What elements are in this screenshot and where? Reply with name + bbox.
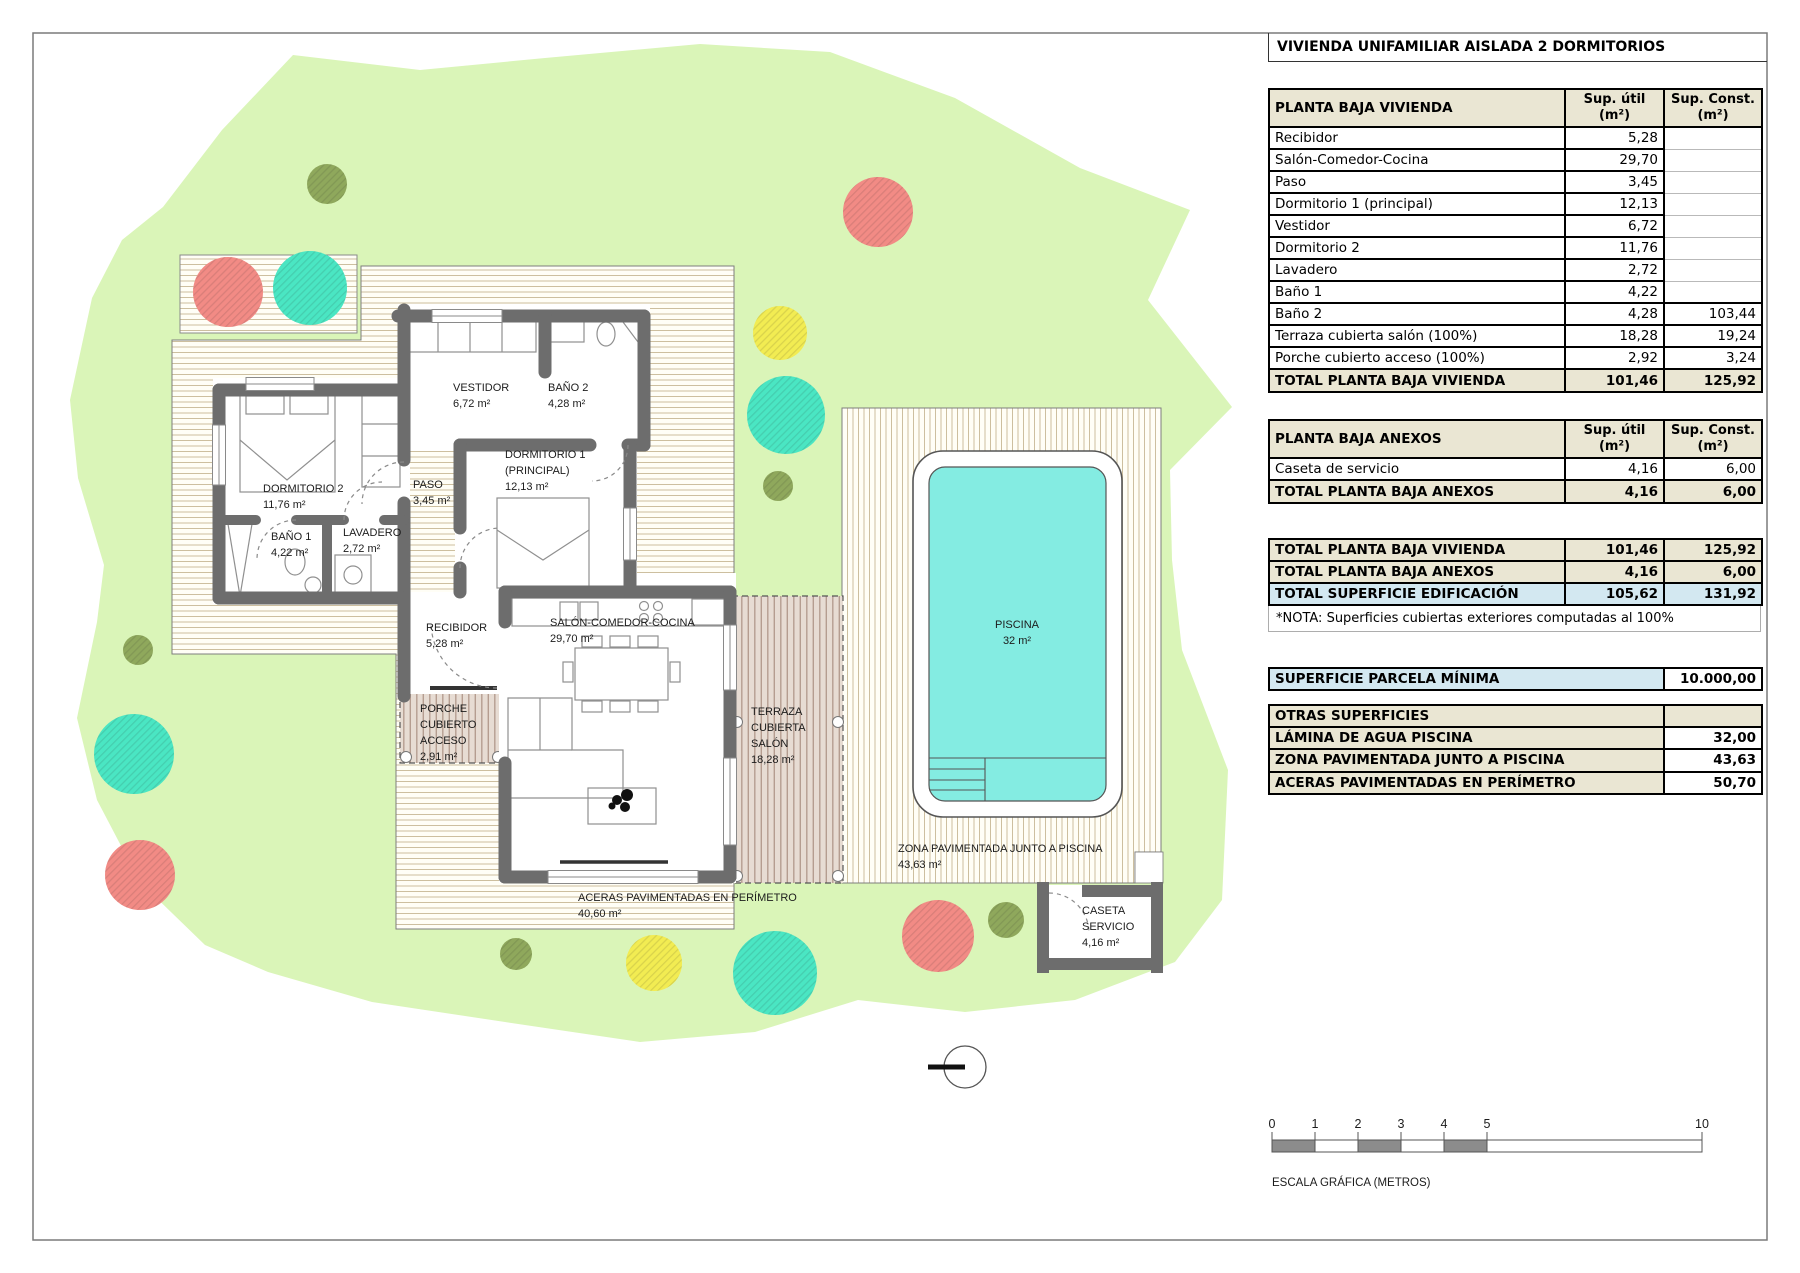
room-name: Dormitorio 2 (1269, 237, 1565, 259)
tree-icon (94, 714, 174, 794)
scale-tick-label: 2 (1355, 1117, 1362, 1131)
room-name: Dormitorio 1 (principal) (1269, 193, 1565, 215)
table-parcela-minima: SUPERFICIE PARCELA MÍNIMA 10.000,00 (1268, 667, 1763, 691)
sup-const (1664, 237, 1762, 259)
scale-tick-label: 5 (1484, 1117, 1491, 1131)
sup-util: 2,72 (1565, 259, 1664, 281)
room-name: Salón-Comedor-Cocina (1269, 149, 1565, 171)
total-const: 131,92 (1664, 583, 1762, 605)
tree-icon (500, 938, 532, 970)
row-label: SUPERFICIE PARCELA MÍNIMA (1269, 668, 1664, 690)
column-header: Sup. Const. (m²) (1664, 420, 1762, 458)
table-header: OTRAS SUPERFICIES (1269, 705, 1664, 727)
table-row: LÁMINA DE AGUA PISCINA32,00 (1269, 727, 1762, 749)
row-label: ZONA PAVIMENTADA JUNTO A PISCINA (1269, 749, 1664, 771)
sup-util: 6,72 (1565, 215, 1664, 237)
total-util: 105,62 (1565, 583, 1664, 605)
room-name: Lavadero (1269, 259, 1565, 281)
total-row: TOTAL PLANTA BAJA VIVIENDA101,46125,92 (1269, 369, 1762, 392)
tree-icon (733, 931, 817, 1015)
table-row: Terraza cubierta salón (100%)18,2819,24 (1269, 325, 1762, 347)
scale-tick-label: 3 (1398, 1117, 1405, 1131)
scale-bar-segment (1358, 1140, 1401, 1152)
scale-tick-label: 1 (1312, 1117, 1319, 1131)
table-row: Dormitorio 1 (principal)12,13 (1269, 193, 1762, 215)
table-header: PLANTA BAJA VIVIENDA (1269, 89, 1565, 127)
sup-util: 4,16 (1565, 458, 1664, 480)
column-header: Sup. útil (m²) (1565, 89, 1664, 127)
sup-const: 103,44 (1664, 303, 1762, 325)
sup-util: 12,13 (1565, 193, 1664, 215)
sup-util: 29,70 (1565, 149, 1664, 171)
table-planta-baja-anexos: PLANTA BAJA ANEXOS Sup. útil (m²) Sup. C… (1268, 419, 1763, 504)
room-name: Baño 1 (1269, 281, 1565, 303)
tree-icon (193, 257, 263, 327)
row-label: LÁMINA DE AGUA PISCINA (1269, 727, 1664, 749)
tree-icon (307, 164, 347, 204)
total-util: 101,46 (1565, 539, 1664, 561)
total-label: TOTAL PLANTA BAJA ANEXOS (1269, 480, 1565, 503)
column-header: Sup. útil (m²) (1565, 420, 1664, 458)
tree-icon (105, 840, 175, 910)
sup-const: 6,00 (1664, 458, 1762, 480)
sup-util: 5,28 (1565, 127, 1664, 149)
table-row: Dormitorio 211,76 (1269, 237, 1762, 259)
sup-const: 19,24 (1664, 325, 1762, 347)
room-name: Caseta de servicio (1269, 458, 1565, 480)
tree-icon (626, 935, 682, 991)
sup-util: 4,28 (1565, 303, 1664, 325)
row-label: ACERAS PAVIMENTADAS EN PERÍMETRO (1269, 772, 1664, 794)
sup-const (1664, 215, 1762, 237)
room-name: Baño 2 (1269, 303, 1565, 325)
table-row: Baño 24,28103,44 (1269, 303, 1762, 325)
table-header: PLANTA BAJA ANEXOS (1269, 420, 1565, 458)
scale-bar-segment (1444, 1140, 1487, 1152)
table-row: Lavadero2,72 (1269, 259, 1762, 281)
row-value: 50,70 (1664, 772, 1762, 794)
table-row: Salón-Comedor-Cocina29,70 (1269, 149, 1762, 171)
tree-icon (763, 471, 793, 501)
pool (913, 451, 1122, 817)
summary-row: TOTAL PLANTA BAJA VIVIENDA101,46125,92 (1269, 539, 1762, 561)
total-const: 125,92 (1664, 369, 1762, 392)
sup-util: 4,22 (1565, 281, 1664, 303)
summary-row: TOTAL PLANTA BAJA ANEXOS4,166,00 (1269, 561, 1762, 583)
total-label: TOTAL PLANTA BAJA VIVIENDA (1269, 539, 1565, 561)
total-util: 101,46 (1565, 369, 1664, 392)
note-text: *NOTA: Superficies cubiertas exteriores … (1268, 606, 1761, 632)
tree-icon (843, 177, 913, 247)
table-row: Paso3,45 (1269, 171, 1762, 193)
table-resumen: TOTAL PLANTA BAJA VIVIENDA101,46125,92TO… (1268, 538, 1763, 606)
table-row: ZONA PAVIMENTADA JUNTO A PISCINA43,63 (1269, 749, 1762, 771)
room-name: Terraza cubierta salón (100%) (1269, 325, 1565, 347)
sup-const (1664, 281, 1762, 303)
scale-bar-caption: ESCALA GRÁFICA (METROS) (1272, 1176, 1431, 1189)
sup-util: 3,45 (1565, 171, 1664, 193)
sup-const (1664, 259, 1762, 281)
total-const: 6,00 (1664, 561, 1762, 583)
tree-icon (988, 902, 1024, 938)
total-label: TOTAL SUPERFICIE EDIFICACIÓN (1269, 583, 1565, 605)
total-label: TOTAL PLANTA BAJA ANEXOS (1269, 561, 1565, 583)
scale-tick-label: 0 (1269, 1117, 1276, 1131)
scale-bar: 01234510ESCALA GRÁFICA (METROS) (1269, 1117, 1709, 1189)
row-value: 10.000,00 (1664, 668, 1762, 690)
total-row: TOTAL PLANTA BAJA ANEXOS4,166,00 (1269, 480, 1762, 503)
table-otras-superficies: OTRAS SUPERFICIES LÁMINA DE AGUA PISCINA… (1268, 704, 1763, 795)
sup-util: 2,92 (1565, 347, 1664, 369)
total-const: 6,00 (1664, 480, 1762, 503)
table-planta-baja-vivienda: PLANTA BAJA VIVIENDA Sup. útil (m²) Sup.… (1268, 88, 1763, 393)
table-row: Porche cubierto acceso (100%)2,923,24 (1269, 347, 1762, 369)
tree-icon (273, 251, 347, 325)
tree-icon (747, 376, 825, 454)
area-schedule-panel: VIVIENDA UNIFAMILIAR AISLADA 2 DORMITORI… (1268, 33, 1767, 795)
sup-const: 3,24 (1664, 347, 1762, 369)
tree-icon (753, 306, 807, 360)
section-marker-icon (928, 1046, 986, 1088)
scale-tick-label: 10 (1695, 1117, 1709, 1131)
table-row: Baño 14,22 (1269, 281, 1762, 303)
tree-icon (902, 900, 974, 972)
pavement-notch (1135, 852, 1163, 883)
sup-util: 18,28 (1565, 325, 1664, 347)
row-value: 43,63 (1664, 749, 1762, 771)
scale-bar-segment (1272, 1140, 1315, 1152)
table-row: ACERAS PAVIMENTADAS EN PERÍMETRO50,70 (1269, 772, 1762, 794)
column-header (1664, 705, 1762, 727)
tree-icon (123, 635, 153, 665)
total-util: 4,16 (1565, 561, 1664, 583)
room-name: Vestidor (1269, 215, 1565, 237)
row-value: 32,00 (1664, 727, 1762, 749)
drawing-title: VIVIENDA UNIFAMILIAR AISLADA 2 DORMITORI… (1268, 33, 1767, 62)
sup-const (1664, 193, 1762, 215)
table-row: Vestidor6,72 (1269, 215, 1762, 237)
sup-const (1664, 127, 1762, 149)
sup-const (1664, 149, 1762, 171)
total-util: 4,16 (1565, 480, 1664, 503)
table-row: Caseta de servicio4,166,00 (1269, 458, 1762, 480)
pool-water (929, 467, 1106, 801)
column-header: Sup. Const. (m²) (1664, 89, 1762, 127)
sup-util: 11,76 (1565, 237, 1664, 259)
sup-const (1664, 171, 1762, 193)
total-const: 125,92 (1664, 539, 1762, 561)
room-name: Paso (1269, 171, 1565, 193)
table-row: Recibidor5,28 (1269, 127, 1762, 149)
total-label: TOTAL PLANTA BAJA VIVIENDA (1269, 369, 1565, 392)
scale-tick-label: 4 (1441, 1117, 1448, 1131)
room-name: Porche cubierto acceso (100%) (1269, 347, 1565, 369)
summary-row: TOTAL SUPERFICIE EDIFICACIÓN105,62131,92 (1269, 583, 1762, 605)
room-name: Recibidor (1269, 127, 1565, 149)
